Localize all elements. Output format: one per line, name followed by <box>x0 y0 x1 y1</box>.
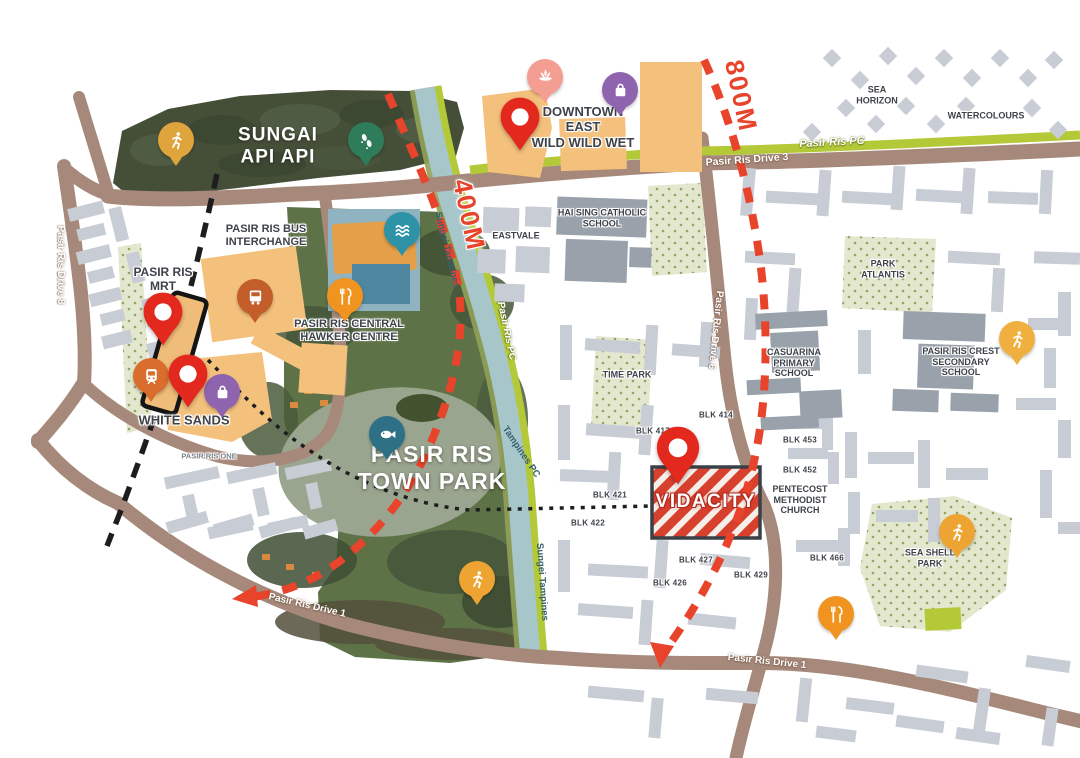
label-blk-429: BLK 429 <box>734 570 768 579</box>
location-pin-icon <box>166 353 210 409</box>
location-pin-icon <box>654 425 702 486</box>
location-pin-icon <box>141 291 185 347</box>
runner-icon <box>459 561 495 597</box>
label-mrt: PASIR RISMRT <box>133 265 192 293</box>
label-eastvale: EASTVALE <box>492 231 539 242</box>
shopping-bag-icon <box>602 72 638 108</box>
red-pin-vidacity[interactable] <box>654 425 702 486</box>
bus-icon <box>237 279 273 315</box>
vidacity-label: VIDACITY <box>656 491 757 513</box>
road-pasir-ris-drive-8 <box>64 166 85 384</box>
runner-pin-town-park[interactable] <box>459 561 495 597</box>
label-pentecost: PENTECOSTMETHODISTCHURCH <box>772 484 827 516</box>
food-pin-hawker-centre[interactable] <box>327 278 363 314</box>
red-pin-mrt[interactable] <box>141 291 185 347</box>
runner-icon <box>999 321 1035 357</box>
train-pin-mrt[interactable] <box>133 358 169 394</box>
label-blk-427: BLK 427 <box>679 555 713 564</box>
label-watercolours: WATERCOLOURS <box>948 111 1025 122</box>
runner-icon <box>939 514 975 550</box>
train-icon <box>133 358 169 394</box>
location-pin-icon <box>498 96 542 152</box>
label-pasir-ris-one: PASIR RIS ONE <box>181 453 236 462</box>
runner-pin-sea-shell-park[interactable] <box>939 514 975 550</box>
food-pin-southeast[interactable] <box>818 596 854 632</box>
runner-pin-sungai-api-api[interactable] <box>158 122 194 158</box>
red-pin-white-sands[interactable] <box>166 353 210 409</box>
label-blk-422: BLK 422 <box>571 518 605 527</box>
label-blk-466: BLK 466 <box>810 553 844 562</box>
hawker-centre-building <box>298 342 347 395</box>
label-blk-421: BLK 421 <box>593 490 627 499</box>
runner-pin-crest-secondary[interactable] <box>999 321 1035 357</box>
label-hai-sing: HAI SING CATHOLICSCHOOL <box>558 207 646 228</box>
sea-horizon-watercolours-buildings <box>803 47 1067 141</box>
cutlery-icon <box>818 596 854 632</box>
footprints-icon <box>348 122 384 158</box>
pool-pin-swim-complex[interactable] <box>384 212 420 248</box>
label-blk-414: BLK 414 <box>699 410 733 419</box>
waves-icon <box>384 212 420 248</box>
label-park-atlantis: PARKATLANTIS <box>861 258 905 279</box>
footprints-pin-sungai-api-api[interactable] <box>348 122 384 158</box>
label-blk-453: BLK 453 <box>783 435 817 444</box>
runner-icon <box>158 122 194 158</box>
bus-pin-interchange[interactable] <box>237 279 273 315</box>
label-sungai-api-api: SUNGAIAPI API <box>238 125 318 170</box>
spa-pin-downtown-east[interactable] <box>527 59 563 95</box>
red-pin-downtown-east[interactable] <box>498 96 542 152</box>
shopping-pin-downtown-east[interactable] <box>602 72 638 108</box>
label-time-park: TIME PARK <box>603 370 652 381</box>
fish-pin-town-park[interactable] <box>369 416 405 452</box>
label-blk-426: BLK 426 <box>653 578 687 587</box>
label-crest-secondary: PASIR RIS CRESTSECONDARYSCHOOL <box>922 346 999 378</box>
cutlery-icon <box>327 278 363 314</box>
lotus-icon <box>527 59 563 95</box>
label-drive-8: Pasir Ris Drive 8 <box>54 226 66 305</box>
fish-icon <box>369 416 405 452</box>
label-sea-horizon: SEAHORIZON <box>856 84 898 105</box>
label-blk-452: BLK 452 <box>783 465 817 474</box>
pasir-ris-location-map: SUNGAIAPI API PASIR RISTOWN PARK DOWNTOW… <box>0 0 1080 758</box>
label-bus-interchange: PASIR RIS BUSINTERCHANGE <box>226 223 307 249</box>
label-casuarina: CASUARINAPRIMARYSCHOOL <box>767 347 821 379</box>
